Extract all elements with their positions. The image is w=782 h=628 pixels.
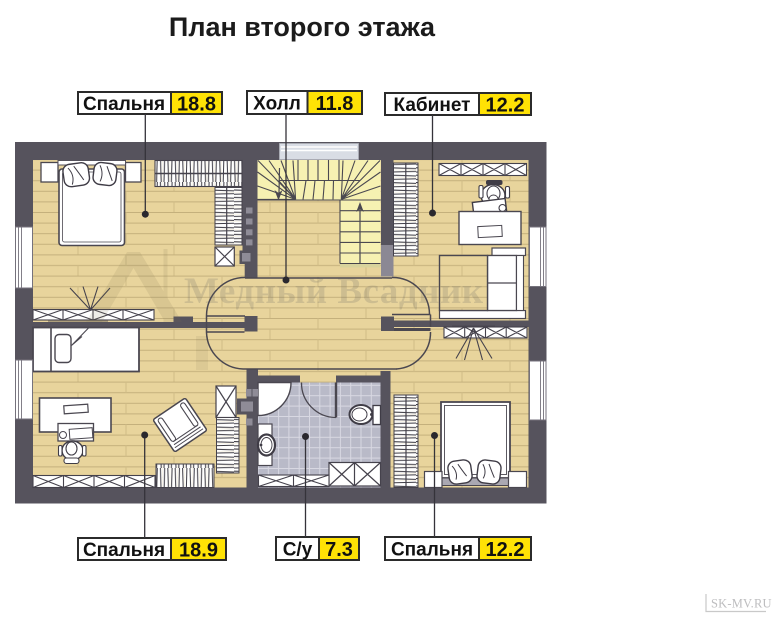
svg-text:План второго этажа: План второго этажа	[169, 12, 436, 42]
svg-text:Спальня: Спальня	[83, 94, 165, 115]
svg-text:С/у: С/у	[283, 540, 313, 561]
svg-text:12.2: 12.2	[486, 95, 525, 117]
svg-text:12.2: 12.2	[486, 539, 525, 561]
svg-text:18.8: 18.8	[177, 94, 216, 116]
svg-text:18.9: 18.9	[179, 540, 218, 562]
svg-text:11.8: 11.8	[316, 93, 354, 115]
svg-text:SK-MV.RU: SK-MV.RU	[711, 597, 772, 611]
svg-text:Медный Всадник: Медный Всадник	[184, 271, 484, 312]
svg-text:Кабинет: Кабинет	[394, 95, 471, 116]
svg-text:Холл: Холл	[253, 94, 301, 115]
svg-text:7.3: 7.3	[325, 539, 353, 561]
svg-text:Спальня: Спальня	[391, 540, 473, 561]
svg-text:Спальня: Спальня	[83, 540, 165, 561]
